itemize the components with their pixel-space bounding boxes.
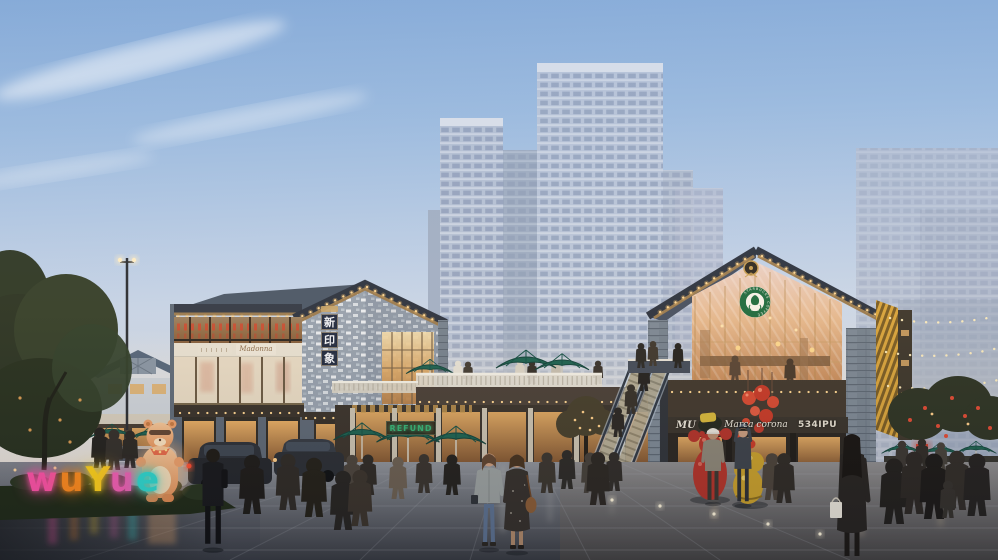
shop-sign-marca-corona: Marca corona <box>724 420 788 430</box>
neon-letter: u <box>59 458 85 498</box>
neon-letter: w <box>26 458 59 498</box>
coffee-logo: STARBUCKS COFFEE <box>740 287 771 318</box>
shop-sign-534ipu: 534IPU <box>798 420 842 430</box>
vertical-gable-sign: 新 印 象 <box>321 306 338 366</box>
sign-top-mark <box>321 306 338 312</box>
boutique-script-sign: Madonna <box>236 344 276 355</box>
plaza-rendering: STARBUCKS COFFEE <box>0 0 998 560</box>
wuyue-neon-reflection: wuYue <box>26 456 161 498</box>
sky-clouds <box>0 8 370 194</box>
neon-letter: e <box>136 458 161 498</box>
neon-letter: Y <box>86 458 110 498</box>
boutique-sign-plate <box>198 345 232 355</box>
green-storefront-sign: REFUND <box>386 421 436 435</box>
sign-char-3: 象 <box>321 350 338 366</box>
neon-letter: u <box>110 458 136 498</box>
sign-char-2: 印 <box>321 332 338 348</box>
sign-char-1: 新 <box>321 314 338 330</box>
shop-sign-mu: MU <box>676 420 696 431</box>
